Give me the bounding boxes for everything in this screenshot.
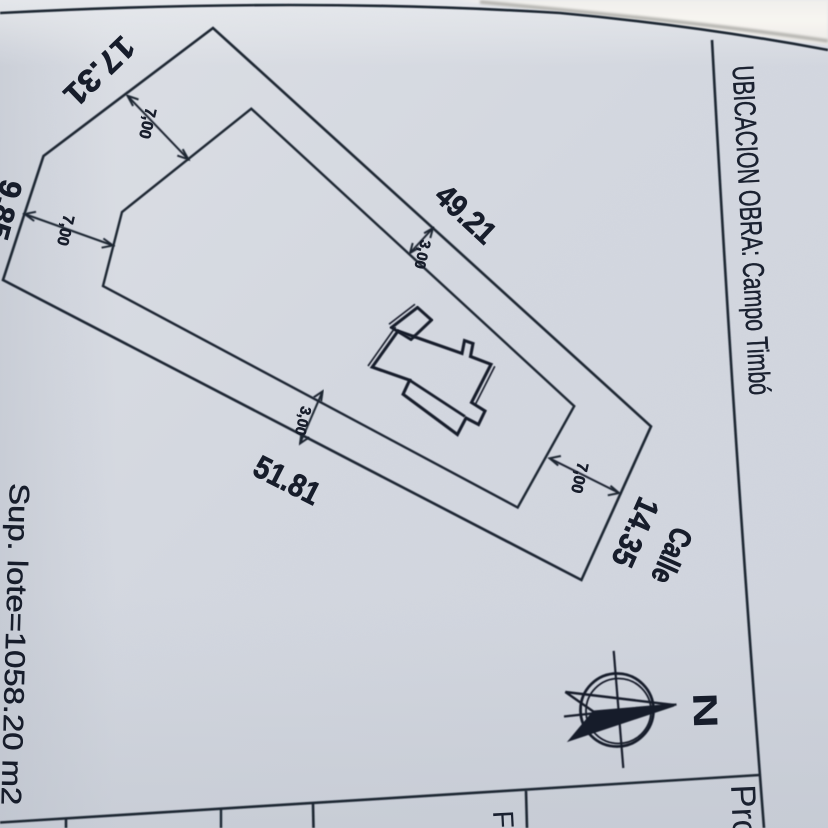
svg-text:N: N	[686, 692, 725, 729]
svg-text:F: F	[486, 810, 519, 828]
svg-text:Pro: Pro	[723, 784, 764, 828]
